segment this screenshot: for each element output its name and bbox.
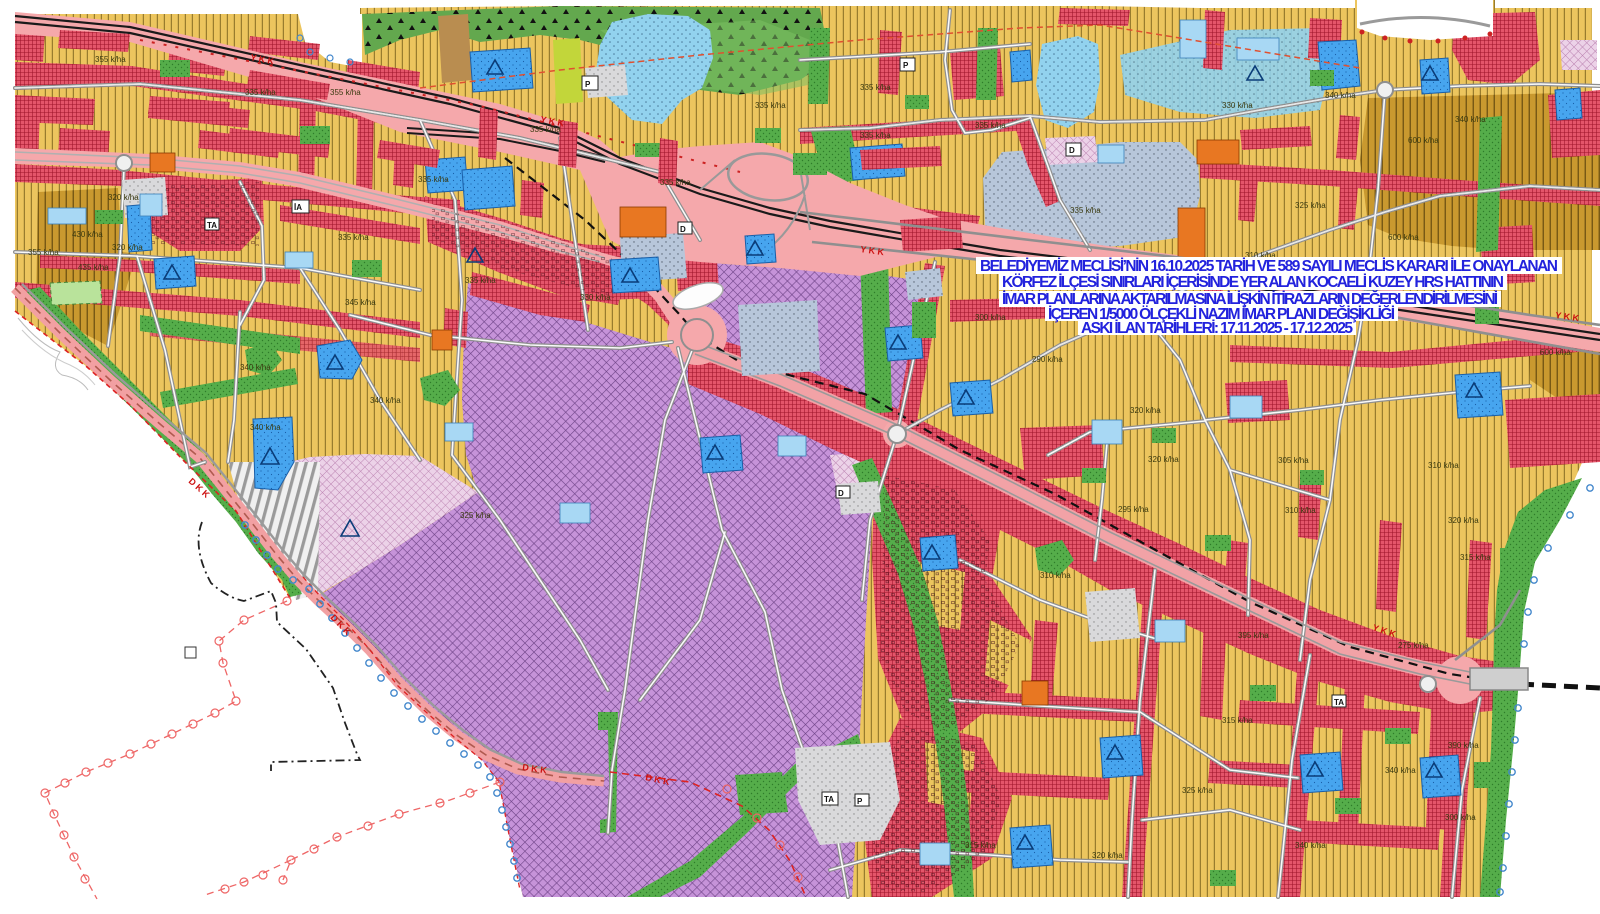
svg-text:340 k/ha: 340 k/ha xyxy=(250,423,281,432)
svg-text:300 k/ha: 300 k/ha xyxy=(1445,813,1476,822)
svg-text:300 k/ha: 300 k/ha xyxy=(975,313,1006,322)
svg-text:305 k/ha: 305 k/ha xyxy=(1278,456,1309,465)
svg-text:340 k/ha: 340 k/ha xyxy=(1295,841,1326,850)
svg-text:320 k/ha: 320 k/ha xyxy=(1148,455,1179,464)
svg-text:İA: İA xyxy=(294,203,302,212)
svg-text:335 k/ha: 335 k/ha xyxy=(975,121,1006,130)
svg-text:315 k/ha: 315 k/ha xyxy=(965,841,996,850)
svg-text:TA: TA xyxy=(824,795,834,804)
svg-text:320 k/ha: 320 k/ha xyxy=(1092,851,1123,860)
svg-text:330 k/ha: 330 k/ha xyxy=(1222,101,1253,110)
svg-text:320 k/ha: 320 k/ha xyxy=(108,193,139,202)
svg-text:335 k/ha: 335 k/ha xyxy=(755,101,786,110)
svg-text:TA: TA xyxy=(207,221,217,230)
svg-text:KÖRFEZ İLÇESİ SINIRLARI İÇERİS: KÖRFEZ İLÇESİ SINIRLARI İÇERİSİNDE YER A… xyxy=(1002,274,1504,291)
svg-text:345 k/ha: 345 k/ha xyxy=(345,298,376,307)
svg-text:ASKI İLAN TARİHLERİ: 17.11.202: ASKI İLAN TARİHLERİ: 17.11.2025 - 17.12.… xyxy=(1081,320,1353,337)
svg-text:P: P xyxy=(903,61,909,70)
svg-text:335 k/ha: 335 k/ha xyxy=(530,125,561,134)
svg-text:355 k/ha: 355 k/ha xyxy=(330,88,361,97)
svg-text:600 k/ha: 600 k/ha xyxy=(1408,136,1439,145)
svg-text:295 k/ha: 295 k/ha xyxy=(1118,505,1149,514)
svg-text:335 k/ha: 335 k/ha xyxy=(245,88,276,97)
svg-text:335 k/ha: 335 k/ha xyxy=(660,178,691,187)
svg-text:430 k/ha: 430 k/ha xyxy=(72,230,103,239)
svg-text:P: P xyxy=(857,797,863,806)
svg-text:BELEDİYEMİZ MECLİSİ’NİN 16.10.: BELEDİYEMİZ MECLİSİ’NİN 16.10.2025 TARİH… xyxy=(980,258,1558,275)
svg-text:325 k/ha: 325 k/ha xyxy=(460,511,491,520)
svg-text:315 k/ha: 315 k/ha xyxy=(1460,553,1491,562)
svg-text:310 k/ha: 310 k/ha xyxy=(1428,461,1459,470)
svg-text:340 k/ha: 340 k/ha xyxy=(370,396,401,405)
svg-text:310 k/ha: 310 k/ha xyxy=(1285,506,1316,515)
svg-text:P: P xyxy=(585,80,591,89)
svg-text:310 k/ha: 310 k/ha xyxy=(1040,571,1071,580)
svg-text:290 k/ha: 290 k/ha xyxy=(1032,355,1063,364)
svg-text:335 k/ha: 335 k/ha xyxy=(860,83,891,92)
svg-text:355 k/ha: 355 k/ha xyxy=(95,55,126,64)
svg-text:435 k/ha: 435 k/ha xyxy=(78,263,109,272)
svg-text:390 k/ha: 390 k/ha xyxy=(1448,741,1479,750)
svg-text:D: D xyxy=(680,225,686,234)
svg-text:335 k/ha: 335 k/ha xyxy=(338,233,369,242)
svg-text:325 k/ha: 325 k/ha xyxy=(1182,786,1213,795)
svg-text:335 k/ha: 335 k/ha xyxy=(1070,206,1101,215)
svg-text:335 k/ha: 335 k/ha xyxy=(418,175,449,184)
svg-text:355 k/ha: 355 k/ha xyxy=(28,248,59,257)
svg-text:325 k/ha: 325 k/ha xyxy=(1295,201,1326,210)
svg-text:315 k/ha: 315 k/ha xyxy=(1222,716,1253,725)
svg-text:275 k/ha: 275 k/ha xyxy=(1398,641,1429,650)
svg-text:340 k/ha: 340 k/ha xyxy=(1455,115,1486,124)
svg-text:D: D xyxy=(838,489,844,498)
svg-text:D: D xyxy=(1069,146,1075,155)
svg-text:395 k/ha: 395 k/ha xyxy=(1238,631,1269,640)
svg-text:330 k/ha: 330 k/ha xyxy=(580,293,611,302)
svg-text:320 k/ha: 320 k/ha xyxy=(1448,516,1479,525)
svg-text:600 k/ha: 600 k/ha xyxy=(1540,348,1571,357)
svg-text:335 k/ha: 335 k/ha xyxy=(860,131,891,140)
svg-text:335 k/ha: 335 k/ha xyxy=(465,276,496,285)
svg-text:340 k/ha: 340 k/ha xyxy=(240,363,271,372)
svg-text:TA: TA xyxy=(1334,698,1344,707)
svg-text:600 k/ha: 600 k/ha xyxy=(1388,233,1419,242)
svg-text:340 k/ha: 340 k/ha xyxy=(1325,91,1356,100)
svg-text:340 k/ha: 340 k/ha xyxy=(1385,766,1416,775)
svg-text:320 k/ha: 320 k/ha xyxy=(1130,406,1161,415)
svg-text:320 k/ha: 320 k/ha xyxy=(112,243,143,252)
